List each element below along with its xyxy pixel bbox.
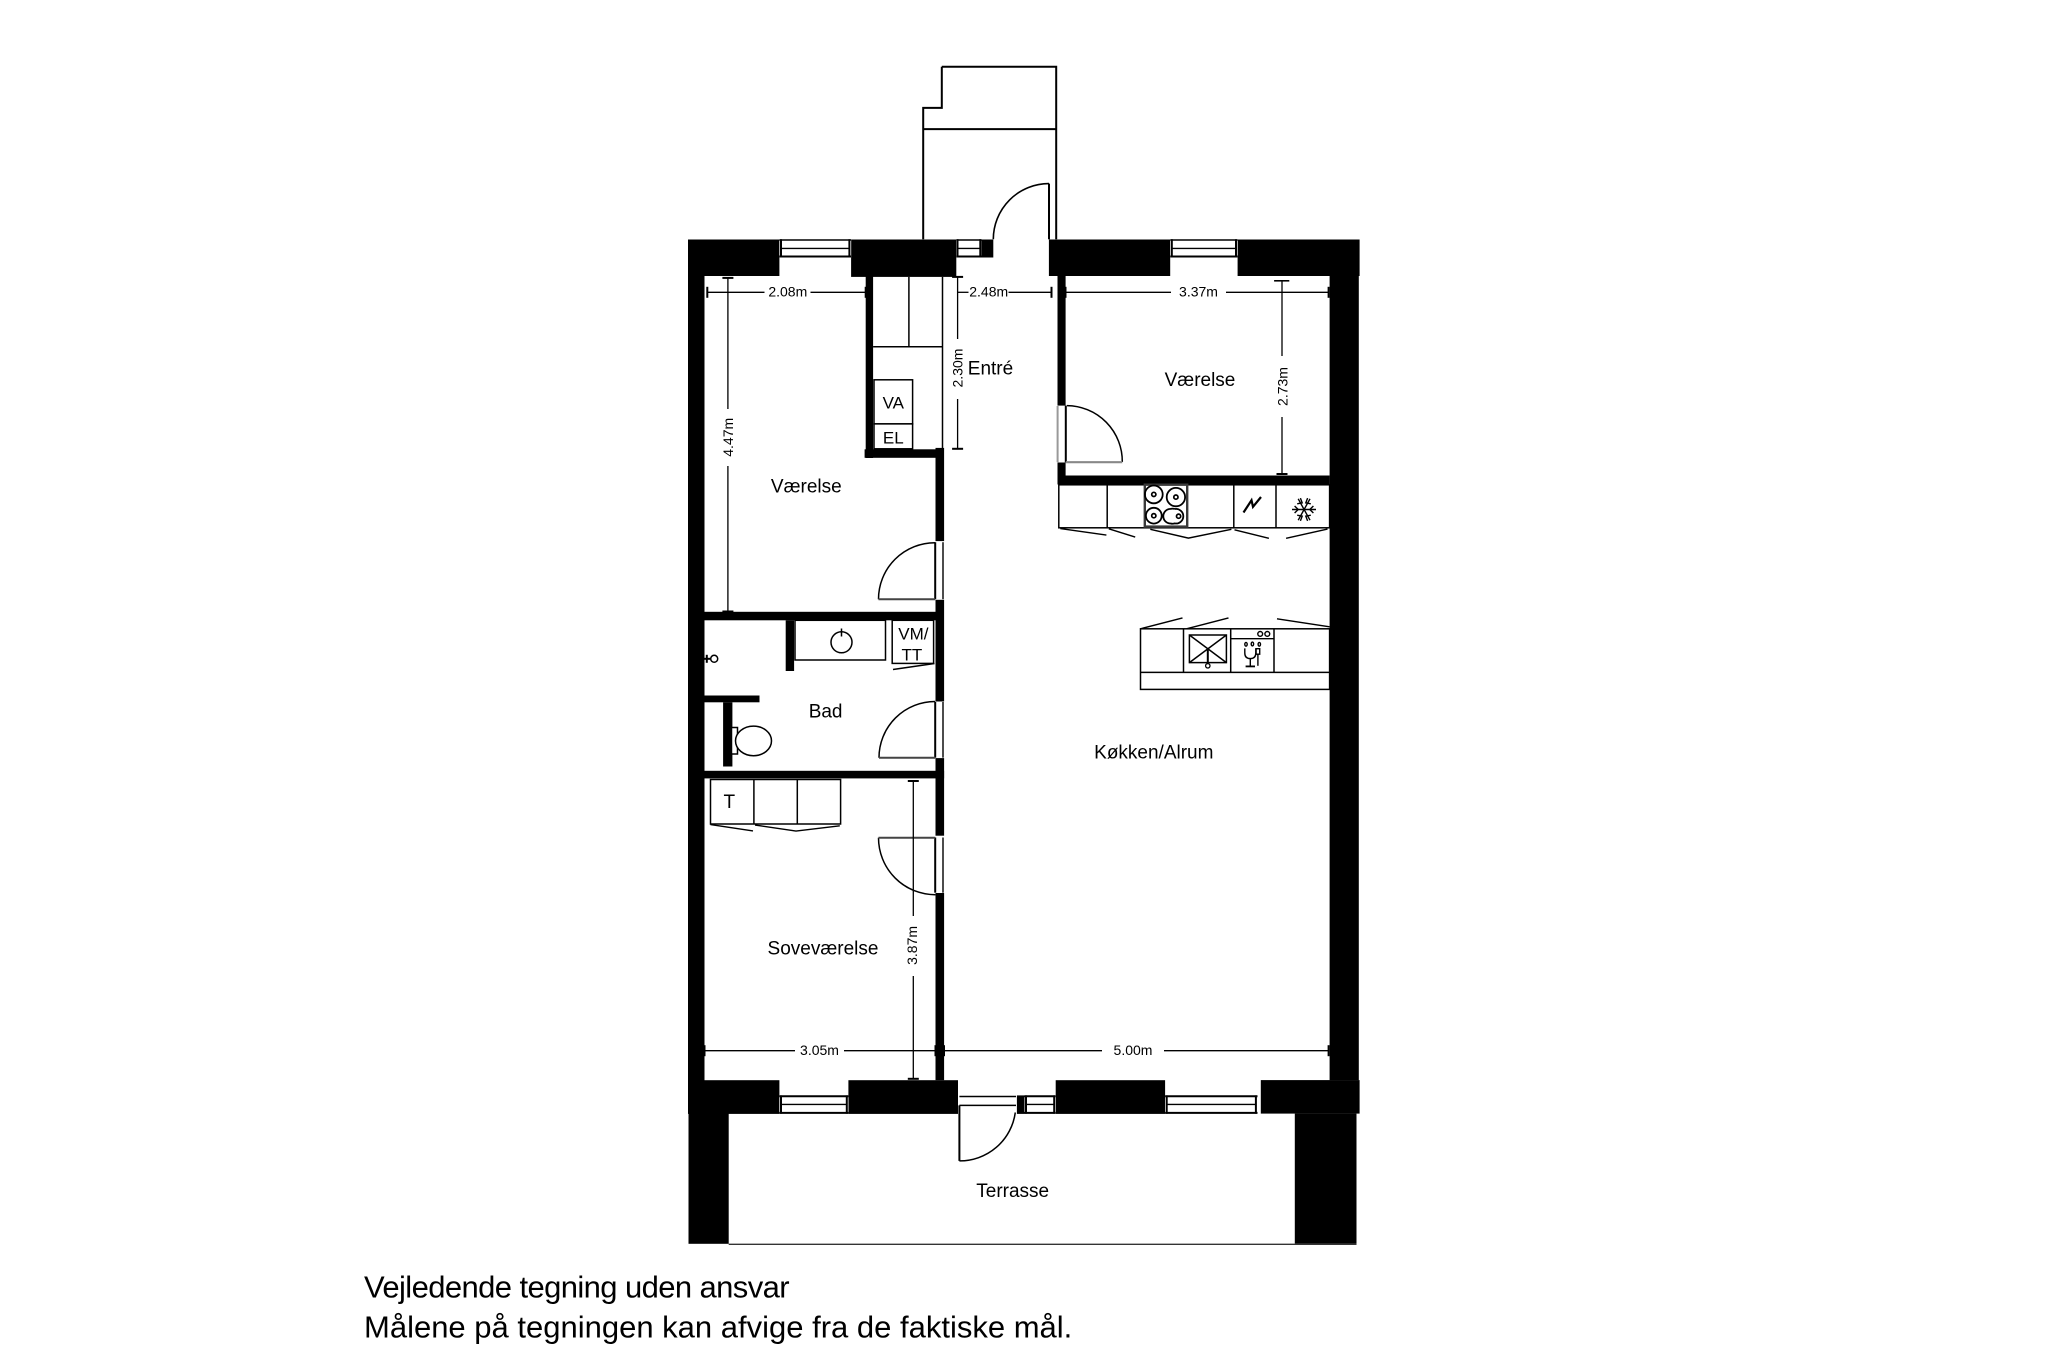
svg-text:TT: TT bbox=[902, 646, 923, 665]
svg-text:VM/: VM/ bbox=[898, 625, 929, 644]
svg-text:2.48m: 2.48m bbox=[969, 284, 1008, 300]
svg-text:Målene på tegningen kan afvige: Målene på tegningen kan afvige fra de fa… bbox=[364, 1310, 1072, 1345]
svg-text:Soveværelse: Soveværelse bbox=[768, 939, 879, 960]
svg-text:5.00m: 5.00m bbox=[1114, 1042, 1153, 1058]
svg-text:EL: EL bbox=[883, 429, 904, 448]
svg-text:2.73m: 2.73m bbox=[1275, 367, 1291, 406]
svg-text:3.37m: 3.37m bbox=[1179, 284, 1218, 300]
svg-text:VA: VA bbox=[883, 394, 905, 413]
svg-text:Terrasse: Terrasse bbox=[976, 1181, 1049, 1202]
svg-text:2.30m: 2.30m bbox=[950, 349, 966, 388]
svg-text:4.47m: 4.47m bbox=[720, 418, 736, 457]
svg-text:3.05m: 3.05m bbox=[800, 1042, 839, 1058]
svg-text:Entré: Entré bbox=[968, 359, 1013, 380]
svg-text:3.87m: 3.87m bbox=[904, 926, 920, 965]
svg-text:Bad: Bad bbox=[809, 702, 843, 723]
svg-text:T: T bbox=[723, 792, 735, 813]
svg-text:Køkken/Alrum: Køkken/Alrum bbox=[1094, 743, 1213, 764]
svg-text:2.08m: 2.08m bbox=[768, 284, 807, 300]
svg-text:Vejledende tegning uden ansvar: Vejledende tegning uden ansvar bbox=[364, 1270, 789, 1305]
svg-text:Værelse: Værelse bbox=[1165, 370, 1236, 391]
svg-text:Værelse: Værelse bbox=[771, 477, 842, 498]
